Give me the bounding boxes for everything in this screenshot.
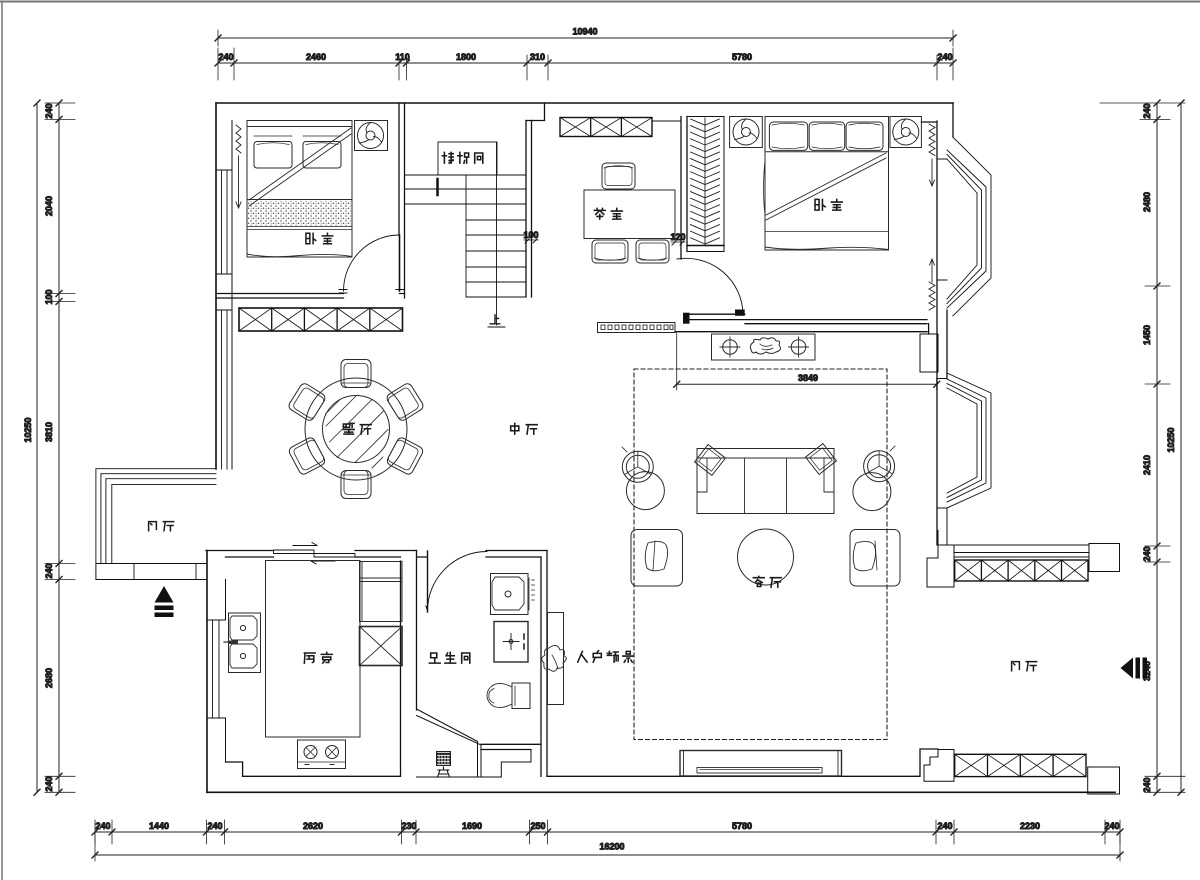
svg-text:250: 250 xyxy=(530,821,545,831)
svg-text:240: 240 xyxy=(1142,103,1152,118)
svg-text:2040: 2040 xyxy=(44,196,54,216)
svg-text:1440: 1440 xyxy=(149,821,169,831)
svg-text:2680: 2680 xyxy=(44,668,54,688)
svg-text:1690: 1690 xyxy=(462,821,482,831)
svg-text:240: 240 xyxy=(44,103,54,118)
svg-text:10940: 10940 xyxy=(572,27,597,37)
svg-text:310: 310 xyxy=(530,52,545,62)
svg-text:16200: 16200 xyxy=(599,842,624,852)
svg-text:240: 240 xyxy=(44,563,54,578)
svg-text:110: 110 xyxy=(395,52,410,62)
svg-text:5780: 5780 xyxy=(732,52,752,62)
svg-text:1450: 1450 xyxy=(1142,325,1152,345)
svg-text:240: 240 xyxy=(44,776,54,791)
svg-text:10250: 10250 xyxy=(23,417,33,442)
svg-text:230: 230 xyxy=(401,821,416,831)
svg-text:2620: 2620 xyxy=(303,821,323,831)
svg-text:240: 240 xyxy=(1104,821,1119,831)
svg-text:2230: 2230 xyxy=(1020,821,1040,831)
svg-text:240: 240 xyxy=(207,821,222,831)
svg-text:2480: 2480 xyxy=(1142,192,1152,212)
svg-text:10250: 10250 xyxy=(1166,427,1176,452)
svg-text:240: 240 xyxy=(95,821,110,831)
svg-text:120: 120 xyxy=(670,232,685,242)
svg-text:5780: 5780 xyxy=(732,821,752,831)
svg-text:240: 240 xyxy=(1142,777,1152,792)
svg-text:100: 100 xyxy=(44,289,54,304)
svg-text:240: 240 xyxy=(218,52,233,62)
svg-text:240: 240 xyxy=(1142,546,1152,561)
svg-text:240: 240 xyxy=(937,52,952,62)
svg-text:240: 240 xyxy=(937,821,952,831)
svg-text:2460: 2460 xyxy=(306,52,326,62)
svg-text:1800: 1800 xyxy=(456,52,476,62)
svg-text:3849: 3849 xyxy=(798,373,818,383)
svg-text:3810: 3810 xyxy=(44,422,54,442)
svg-text:2410: 2410 xyxy=(1142,455,1152,475)
